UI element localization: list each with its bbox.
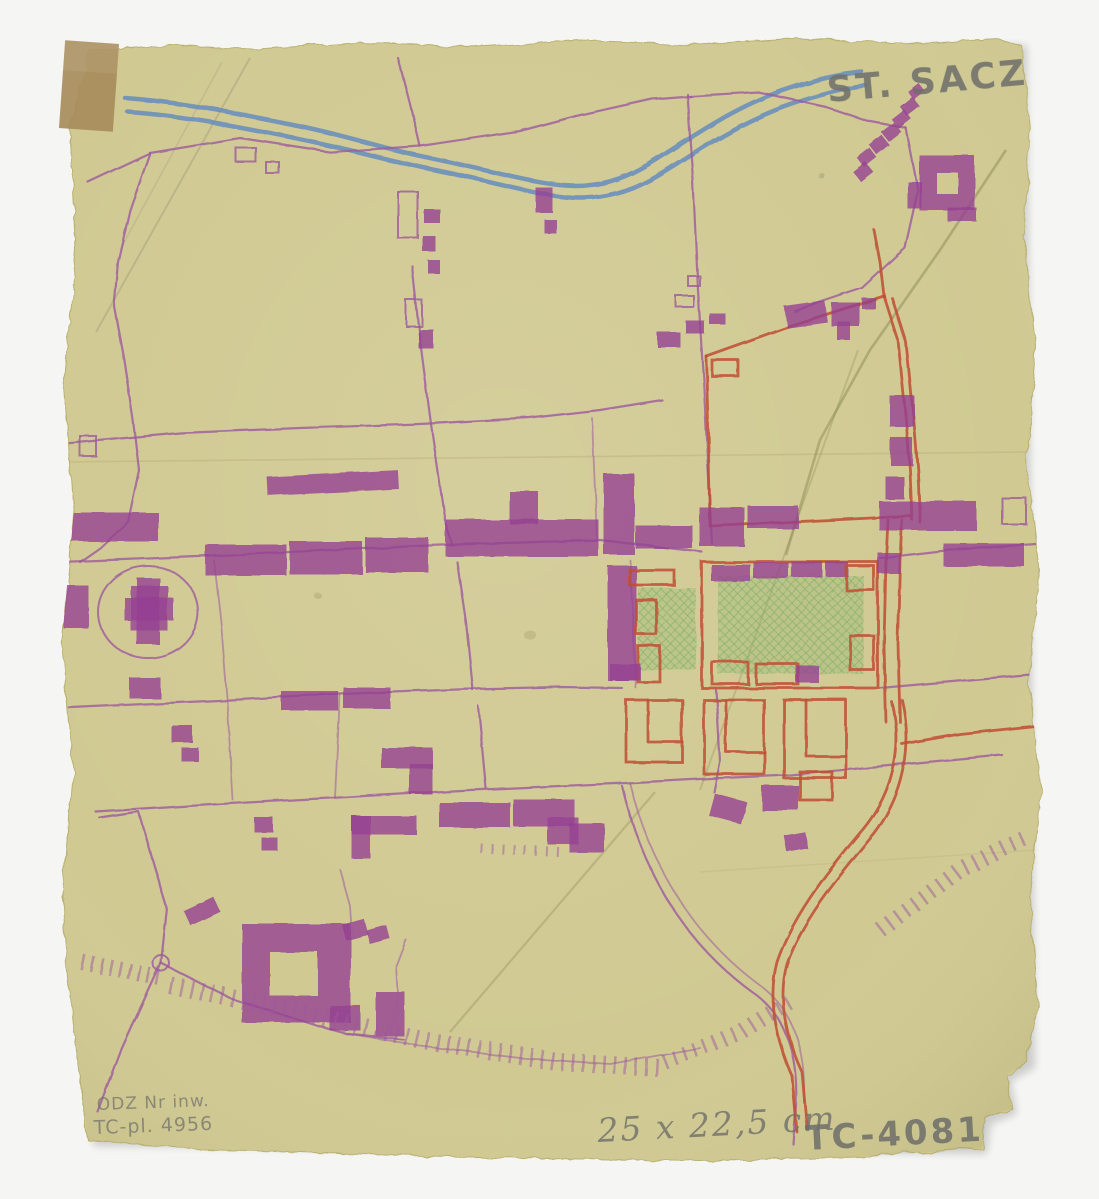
inventory-annotation-line1: ODZ Nr inw.	[96, 1091, 210, 1115]
inventory-annotation-line2: TC-pl. 4956	[92, 1113, 213, 1139]
scanned-map-sheet: ST. SACZ 25 x 22,5 cm TC-4081 ODZ Nr inw…	[0, 0, 1099, 1199]
tape-shine	[63, 40, 119, 74]
hand-drawn-town-plan: ST. SACZ 25 x 22,5 cm TC-4081 ODZ Nr inw…	[0, 0, 1099, 1199]
